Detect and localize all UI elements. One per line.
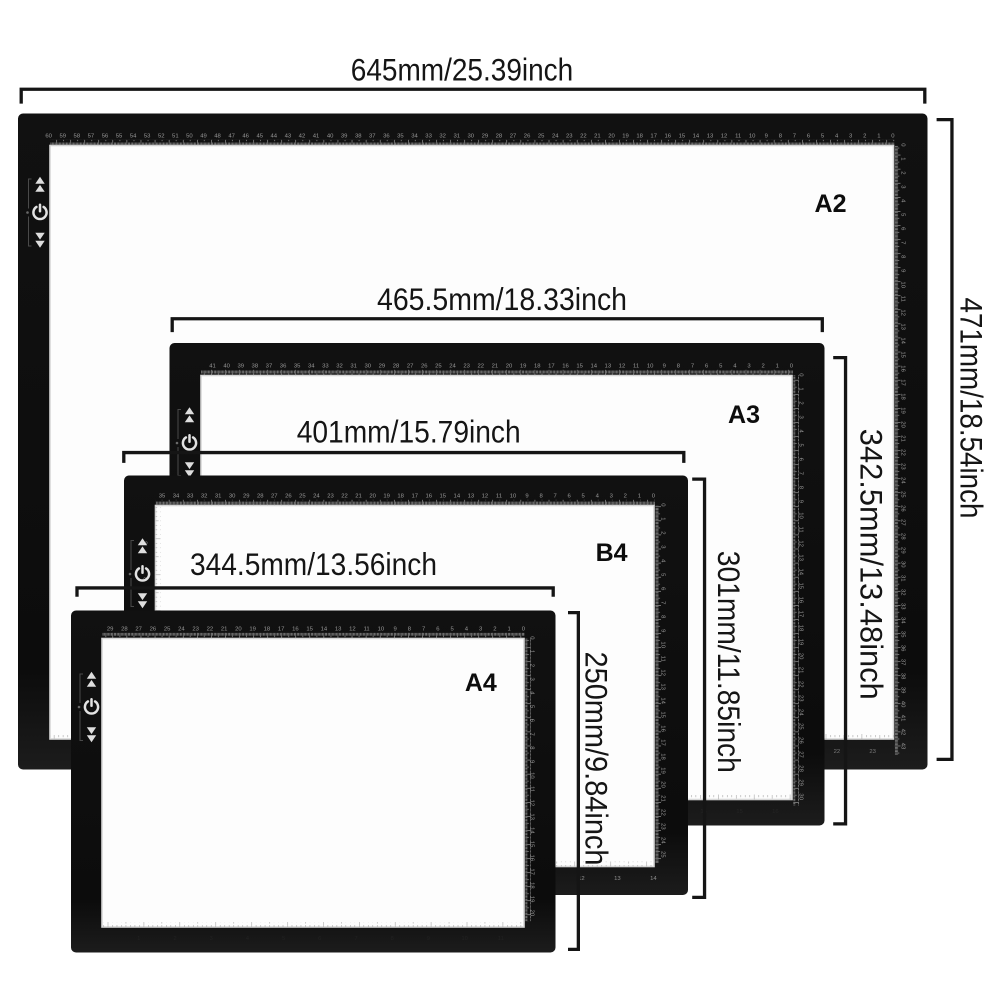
svg-text:52: 52 (158, 134, 165, 140)
svg-text:15: 15 (440, 494, 447, 500)
svg-text:23: 23 (327, 494, 334, 500)
svg-text:9: 9 (765, 134, 768, 140)
svg-text:17: 17 (650, 134, 657, 140)
svg-text:11: 11 (633, 364, 639, 370)
svg-text:29: 29 (900, 547, 906, 554)
svg-text:30: 30 (468, 134, 475, 140)
svg-text:19: 19 (520, 364, 527, 370)
svg-text:36: 36 (383, 134, 390, 140)
svg-text:12: 12 (482, 494, 489, 500)
svg-text:50: 50 (186, 134, 193, 140)
svg-text:34: 34 (411, 134, 418, 140)
svg-text:11: 11 (735, 134, 741, 140)
svg-text:40: 40 (900, 701, 906, 708)
svg-text:29: 29 (482, 134, 489, 140)
svg-text:10: 10 (461, 936, 468, 942)
svg-text:48: 48 (214, 134, 221, 140)
svg-text:22: 22 (580, 134, 587, 140)
svg-text:10: 10 (749, 134, 756, 140)
svg-text:29: 29 (107, 627, 114, 633)
svg-text:21: 21 (594, 134, 601, 140)
svg-text:41: 41 (209, 364, 216, 370)
svg-text:342.5mm/13.48inch: 342.5mm/13.48inch (854, 429, 890, 700)
svg-text:7: 7 (793, 134, 796, 140)
svg-text:26: 26 (421, 364, 428, 370)
svg-text:42: 42 (299, 134, 306, 140)
svg-text:15: 15 (576, 364, 583, 370)
svg-text:32: 32 (336, 364, 343, 370)
svg-text:34: 34 (173, 494, 180, 500)
svg-text:15: 15 (306, 627, 313, 633)
svg-text:11: 11 (900, 296, 906, 302)
svg-text:20: 20 (235, 627, 242, 633)
svg-text:26: 26 (285, 494, 292, 500)
svg-text:43: 43 (900, 743, 906, 750)
svg-text:28: 28 (257, 494, 264, 500)
svg-text:41: 41 (313, 134, 320, 140)
svg-text:2: 2 (173, 936, 176, 942)
svg-text:13: 13 (335, 627, 342, 633)
svg-text:13: 13 (707, 134, 714, 140)
svg-text:1: 1 (900, 157, 906, 160)
svg-text:16: 16 (562, 364, 569, 370)
svg-text:18: 18 (534, 364, 541, 370)
svg-text:26: 26 (524, 134, 531, 140)
svg-text:40: 40 (327, 134, 334, 140)
svg-text:23: 23 (869, 749, 876, 755)
svg-text:36: 36 (280, 364, 287, 370)
svg-text:14: 14 (454, 494, 461, 500)
svg-text:24: 24 (900, 477, 906, 484)
svg-text:15: 15 (900, 351, 906, 358)
svg-text:27: 27 (135, 627, 142, 633)
svg-text:17: 17 (278, 627, 285, 633)
svg-text:16: 16 (664, 134, 671, 140)
svg-text:39: 39 (900, 687, 906, 694)
svg-text:20: 20 (506, 364, 513, 370)
svg-text:46: 46 (242, 134, 249, 140)
svg-text:13: 13 (468, 494, 475, 500)
svg-text:18: 18 (900, 393, 906, 400)
svg-text:14: 14 (321, 627, 328, 633)
svg-text:44: 44 (271, 134, 278, 140)
svg-text:19: 19 (383, 494, 390, 500)
svg-text:29: 29 (243, 494, 250, 500)
svg-text:7: 7 (691, 364, 694, 370)
svg-text:23: 23 (566, 134, 573, 140)
svg-text:25: 25 (164, 627, 171, 633)
svg-text:9: 9 (394, 627, 397, 633)
svg-text:39: 39 (237, 364, 244, 370)
svg-text:1: 1 (877, 134, 880, 140)
svg-text:24: 24 (552, 134, 559, 140)
svg-text:10: 10 (647, 364, 654, 370)
svg-text:34: 34 (900, 617, 906, 624)
svg-text:13: 13 (900, 323, 906, 330)
svg-text:12: 12 (349, 627, 356, 633)
svg-text:12: 12 (900, 309, 906, 316)
svg-text:33: 33 (187, 494, 194, 500)
svg-text:24: 24 (313, 494, 320, 500)
svg-text:28: 28 (393, 364, 400, 370)
svg-text:37: 37 (266, 364, 273, 370)
svg-text:53: 53 (144, 134, 151, 140)
svg-text:36: 36 (900, 645, 906, 652)
svg-text:37: 37 (369, 134, 376, 140)
svg-text:10: 10 (510, 494, 517, 500)
svg-text:9: 9 (525, 494, 528, 500)
svg-text:30: 30 (900, 561, 906, 568)
svg-text:49: 49 (200, 134, 207, 140)
svg-text:23: 23 (192, 627, 199, 633)
svg-text:20: 20 (369, 494, 376, 500)
svg-text:18: 18 (397, 494, 404, 500)
svg-text:21: 21 (900, 435, 906, 442)
svg-text:15: 15 (736, 809, 743, 815)
svg-text:27: 27 (510, 134, 517, 140)
svg-text:13: 13 (614, 876, 621, 882)
svg-text:24: 24 (449, 364, 456, 370)
svg-text:2: 2 (863, 134, 866, 140)
svg-text:B4: B4 (596, 539, 628, 567)
svg-text:33: 33 (900, 603, 906, 610)
svg-text:20: 20 (900, 421, 906, 428)
svg-text:35: 35 (159, 494, 166, 500)
svg-text:12: 12 (619, 364, 626, 370)
svg-text:38: 38 (355, 134, 362, 140)
svg-text:A2: A2 (815, 190, 847, 218)
svg-text:51: 51 (172, 134, 179, 140)
svg-text:35: 35 (294, 364, 301, 370)
svg-text:26: 26 (900, 505, 906, 512)
svg-text:401mm/15.79inch: 401mm/15.79inch (297, 414, 521, 450)
svg-text:57: 57 (88, 134, 95, 140)
svg-text:23: 23 (463, 364, 470, 370)
svg-text:2: 2 (493, 627, 496, 633)
svg-text:10: 10 (900, 281, 906, 288)
svg-text:28: 28 (121, 627, 128, 633)
svg-text:A3: A3 (728, 401, 760, 429)
svg-text:14: 14 (693, 134, 700, 140)
svg-text:18: 18 (636, 134, 643, 140)
svg-text:56: 56 (102, 134, 109, 140)
svg-text:11: 11 (496, 494, 502, 500)
svg-text:22: 22 (900, 449, 906, 456)
svg-text:25: 25 (299, 494, 306, 500)
svg-text:39: 39 (341, 134, 348, 140)
svg-text:59: 59 (59, 134, 66, 140)
svg-text:33: 33 (425, 134, 432, 140)
svg-text:35: 35 (900, 631, 906, 638)
svg-text:19: 19 (622, 134, 629, 140)
svg-text:2: 2 (624, 494, 627, 500)
svg-text:60: 60 (45, 134, 52, 140)
svg-text:15: 15 (679, 134, 686, 140)
svg-text:35: 35 (397, 134, 404, 140)
svg-text:21: 21 (355, 494, 362, 500)
svg-text:16: 16 (900, 365, 906, 372)
svg-text:9: 9 (427, 936, 430, 942)
svg-text:33: 33 (322, 364, 329, 370)
svg-text:29: 29 (379, 364, 386, 370)
svg-text:22: 22 (341, 494, 348, 500)
svg-text:58: 58 (74, 134, 81, 140)
svg-text:32: 32 (201, 494, 208, 500)
svg-text:54: 54 (130, 134, 137, 140)
svg-text:32: 32 (900, 589, 906, 596)
svg-text:20: 20 (608, 134, 615, 140)
svg-text:31: 31 (350, 364, 357, 370)
svg-text:471mm/18.54inch: 471mm/18.54inch (954, 298, 990, 519)
svg-text:32: 32 (439, 134, 446, 140)
svg-text:645mm/25.39inch: 645mm/25.39inch (351, 51, 574, 87)
svg-text:27: 27 (407, 364, 414, 370)
svg-text:11: 11 (364, 627, 370, 633)
svg-text:21: 21 (221, 627, 228, 633)
svg-text:41: 41 (900, 715, 906, 722)
svg-text:11: 11 (498, 936, 504, 942)
svg-text:14: 14 (900, 337, 906, 344)
svg-text:18: 18 (264, 627, 271, 633)
svg-text:16: 16 (292, 627, 299, 633)
svg-text:27: 27 (900, 519, 906, 526)
svg-text:344.5mm/13.56inch: 344.5mm/13.56inch (190, 546, 437, 582)
svg-text:22: 22 (477, 364, 484, 370)
svg-text:45: 45 (256, 134, 263, 140)
svg-text:14: 14 (590, 364, 597, 370)
svg-text:2: 2 (900, 171, 906, 174)
svg-text:34: 34 (308, 364, 315, 370)
svg-text:30: 30 (229, 494, 236, 500)
svg-text:47: 47 (228, 134, 235, 140)
svg-text:1: 1 (776, 364, 779, 370)
svg-text:24: 24 (178, 627, 185, 633)
svg-text:7: 7 (354, 936, 357, 942)
svg-text:38: 38 (900, 673, 906, 680)
svg-text:27: 27 (271, 494, 278, 500)
svg-text:7: 7 (553, 494, 556, 500)
svg-text:55: 55 (116, 134, 123, 140)
svg-text:7: 7 (422, 627, 425, 633)
svg-text:40: 40 (223, 364, 230, 370)
svg-text:22: 22 (834, 749, 841, 755)
svg-text:301mm/11.85inch: 301mm/11.85inch (711, 551, 747, 773)
svg-text:28: 28 (900, 533, 906, 540)
svg-text:25: 25 (900, 491, 906, 498)
svg-text:25: 25 (538, 134, 545, 140)
svg-text:21: 21 (492, 364, 499, 370)
svg-text:30: 30 (365, 364, 372, 370)
svg-text:10: 10 (378, 627, 385, 633)
svg-text:42: 42 (900, 729, 906, 736)
svg-text:16: 16 (772, 809, 779, 815)
svg-text:1: 1 (638, 494, 641, 500)
svg-text:9: 9 (663, 364, 666, 370)
svg-text:31: 31 (215, 494, 222, 500)
svg-text:31: 31 (453, 134, 460, 140)
svg-text:19: 19 (900, 407, 906, 414)
svg-text:2: 2 (762, 364, 765, 370)
svg-text:19: 19 (249, 627, 256, 633)
svg-text:12: 12 (721, 134, 728, 140)
svg-text:17: 17 (900, 379, 906, 386)
svg-text:26: 26 (150, 627, 157, 633)
svg-text:17: 17 (548, 364, 555, 370)
svg-text:465.5mm/18.33inch: 465.5mm/18.33inch (377, 281, 627, 317)
svg-text:38: 38 (252, 364, 259, 370)
svg-text:28: 28 (496, 134, 503, 140)
svg-text:13: 13 (605, 364, 612, 370)
svg-text:250mm/9.84inch: 250mm/9.84inch (578, 652, 614, 866)
svg-text:A4: A4 (465, 669, 497, 697)
svg-text:23: 23 (900, 463, 906, 470)
svg-text:43: 43 (285, 134, 292, 140)
svg-text:9: 9 (900, 269, 906, 272)
svg-text:25: 25 (435, 364, 442, 370)
svg-text:14: 14 (650, 876, 657, 882)
svg-text:22: 22 (207, 627, 214, 633)
svg-text:1: 1 (508, 627, 511, 633)
svg-text:16: 16 (425, 494, 432, 500)
svg-text:37: 37 (900, 659, 906, 666)
svg-text:7: 7 (900, 241, 906, 244)
svg-text:17: 17 (411, 494, 418, 500)
svg-text:31: 31 (900, 575, 906, 582)
svg-text:1: 1 (137, 936, 140, 942)
